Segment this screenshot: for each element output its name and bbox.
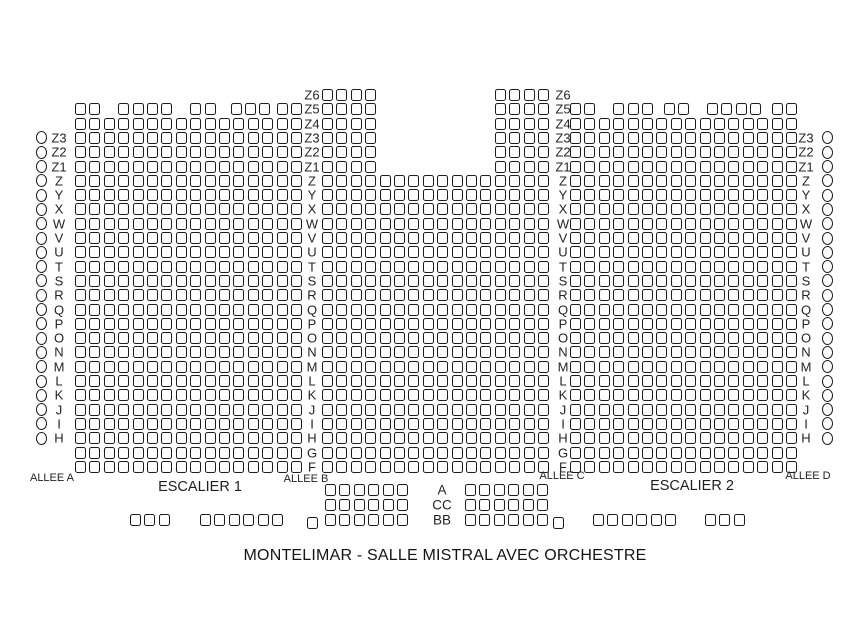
seat-F[interactable]	[642, 461, 653, 473]
seat-W[interactable]	[176, 218, 187, 230]
seat-Z[interactable]	[700, 175, 711, 187]
seat-K[interactable]	[423, 389, 434, 401]
seat-J[interactable]	[147, 404, 158, 416]
seat-F[interactable]	[495, 461, 506, 473]
seat-Y[interactable]	[509, 189, 520, 201]
seat-Y[interactable]	[161, 189, 172, 201]
seat-Z2[interactable]	[104, 146, 115, 158]
seat-Z2[interactable]	[599, 146, 610, 158]
seat-BB[interactable]	[665, 514, 676, 526]
seat-U[interactable]	[365, 246, 376, 258]
seat-Z[interactable]	[524, 175, 535, 187]
seat-L[interactable]	[351, 375, 362, 387]
seat-I[interactable]	[133, 418, 144, 430]
seat-M[interactable]	[291, 361, 302, 373]
seat-N[interactable]	[656, 346, 667, 358]
seat-Z1[interactable]	[524, 161, 535, 173]
seat-U[interactable]	[452, 246, 463, 258]
seat-P[interactable]	[394, 318, 405, 330]
seat-K[interactable]	[642, 389, 653, 401]
seat-X[interactable]	[219, 203, 230, 215]
seat-T[interactable]	[656, 261, 667, 273]
seat-R[interactable]	[322, 289, 333, 301]
seat-O[interactable]	[599, 332, 610, 344]
seat-U[interactable]	[772, 246, 783, 258]
seat-S[interactable]	[322, 275, 333, 287]
seat-Z5[interactable]	[538, 103, 549, 115]
seat-S[interactable]	[161, 275, 172, 287]
seat-Z4[interactable]	[642, 118, 653, 130]
seat-G[interactable]	[262, 447, 273, 459]
seat-X[interactable]	[613, 203, 624, 215]
seat-BB[interactable]	[553, 517, 564, 529]
seat-A[interactable]	[368, 484, 379, 496]
seat-Z4[interactable]	[584, 118, 595, 130]
seat-P[interactable]	[437, 318, 448, 330]
seat-P[interactable]	[538, 318, 549, 330]
seat-K[interactable]	[437, 389, 448, 401]
seat-L[interactable]	[437, 375, 448, 387]
seat-M[interactable]	[277, 361, 288, 373]
seat-BB[interactable]	[397, 514, 408, 526]
seat-K[interactable]	[219, 389, 230, 401]
seat-I[interactable]	[118, 418, 129, 430]
seat-F[interactable]	[599, 461, 610, 473]
seat-BB[interactable]	[130, 514, 141, 526]
seat-S[interactable]	[452, 275, 463, 287]
seat-P[interactable]	[642, 318, 653, 330]
seat-Z6[interactable]	[336, 89, 347, 101]
seat-S[interactable]	[584, 275, 595, 287]
seat-P[interactable]	[570, 318, 581, 330]
seat-F[interactable]	[613, 461, 624, 473]
seat-R[interactable]	[584, 289, 595, 301]
seat-T[interactable]	[277, 261, 288, 273]
seat-J[interactable]	[219, 404, 230, 416]
seat-T[interactable]	[757, 261, 768, 273]
seat-J[interactable]	[628, 404, 639, 416]
seat-J[interactable]	[772, 404, 783, 416]
seat-L[interactable]	[219, 375, 230, 387]
seat-U[interactable]	[176, 246, 187, 258]
seat-M[interactable]	[584, 361, 595, 373]
seat-Z5[interactable]	[231, 103, 242, 115]
seat-S[interactable]	[262, 275, 273, 287]
seat-P[interactable]	[628, 318, 639, 330]
seat-S[interactable]	[437, 275, 448, 287]
seat-BB[interactable]	[200, 514, 211, 526]
seat-BB[interactable]	[272, 514, 283, 526]
seat-X[interactable]	[147, 203, 158, 215]
seat-Z3[interactable]	[133, 132, 144, 144]
seat-U[interactable]	[291, 246, 302, 258]
seat-Z2[interactable]	[757, 146, 768, 158]
seat-T[interactable]	[394, 261, 405, 273]
seat-Z1[interactable]	[219, 161, 230, 173]
seat-Y[interactable]	[133, 189, 144, 201]
seat-X[interactable]	[277, 203, 288, 215]
seat-L[interactable]	[89, 375, 100, 387]
seat-V[interactable]	[423, 232, 434, 244]
seat-J[interactable]	[671, 404, 682, 416]
seat-N[interactable]	[394, 346, 405, 358]
row-end-circle-seat[interactable]	[822, 174, 833, 187]
seat-P[interactable]	[524, 318, 535, 330]
seat-N[interactable]	[772, 346, 783, 358]
row-end-circle-seat[interactable]	[822, 360, 833, 373]
seat-BB[interactable]	[537, 514, 548, 526]
seat-H[interactable]	[743, 432, 754, 444]
seat-T[interactable]	[233, 261, 244, 273]
seat-Y[interactable]	[728, 189, 739, 201]
seat-T[interactable]	[509, 261, 520, 273]
seat-G[interactable]	[757, 447, 768, 459]
seat-V[interactable]	[176, 232, 187, 244]
seat-I[interactable]	[599, 418, 610, 430]
seat-Z2[interactable]	[248, 146, 259, 158]
seat-Z2[interactable]	[570, 146, 581, 158]
seat-U[interactable]	[613, 246, 624, 258]
seat-Z5[interactable]	[336, 103, 347, 115]
seat-Q[interactable]	[205, 304, 216, 316]
seat-Z1[interactable]	[714, 161, 725, 173]
seat-Z1[interactable]	[570, 161, 581, 173]
seat-H[interactable]	[277, 432, 288, 444]
seat-Q[interactable]	[628, 304, 639, 316]
seat-T[interactable]	[714, 261, 725, 273]
seat-V[interactable]	[480, 232, 491, 244]
seat-F[interactable]	[380, 461, 391, 473]
seat-Z3[interactable]	[190, 132, 201, 144]
seat-L[interactable]	[700, 375, 711, 387]
row-end-circle-seat[interactable]	[36, 303, 47, 316]
seat-BB[interactable]	[383, 514, 394, 526]
seat-Q[interactable]	[351, 304, 362, 316]
seat-S[interactable]	[495, 275, 506, 287]
seat-G[interactable]	[147, 447, 158, 459]
seat-R[interactable]	[233, 289, 244, 301]
seat-X[interactable]	[351, 203, 362, 215]
seat-R[interactable]	[219, 289, 230, 301]
seat-Z1[interactable]	[628, 161, 639, 173]
seat-V[interactable]	[394, 232, 405, 244]
seat-K[interactable]	[104, 389, 115, 401]
seat-X[interactable]	[584, 203, 595, 215]
seat-W[interactable]	[233, 218, 244, 230]
seat-H[interactable]	[205, 432, 216, 444]
seat-W[interactable]	[351, 218, 362, 230]
seat-Y[interactable]	[277, 189, 288, 201]
seat-H[interactable]	[613, 432, 624, 444]
seat-O[interactable]	[538, 332, 549, 344]
seat-F[interactable]	[190, 461, 201, 473]
seat-S[interactable]	[423, 275, 434, 287]
seat-Z4[interactable]	[757, 118, 768, 130]
seat-K[interactable]	[118, 389, 129, 401]
seat-M[interactable]	[524, 361, 535, 373]
seat-R[interactable]	[118, 289, 129, 301]
seat-X[interactable]	[89, 203, 100, 215]
seat-Z4[interactable]	[161, 118, 172, 130]
seat-X[interactable]	[205, 203, 216, 215]
seat-H[interactable]	[336, 432, 347, 444]
seat-Z4[interactable]	[233, 118, 244, 130]
seat-V[interactable]	[161, 232, 172, 244]
seat-R[interactable]	[291, 289, 302, 301]
seat-Z5[interactable]	[642, 103, 653, 115]
seat-Z1[interactable]	[509, 161, 520, 173]
seat-V[interactable]	[772, 232, 783, 244]
seat-Z4[interactable]	[190, 118, 201, 130]
seat-Z5[interactable]	[365, 103, 376, 115]
seat-Z2[interactable]	[728, 146, 739, 158]
seat-Q[interactable]	[743, 304, 754, 316]
seat-Z[interactable]	[584, 175, 595, 187]
seat-X[interactable]	[104, 203, 115, 215]
seat-Y[interactable]	[757, 189, 768, 201]
seat-S[interactable]	[133, 275, 144, 287]
seat-M[interactable]	[671, 361, 682, 373]
seat-U[interactable]	[262, 246, 273, 258]
seat-Q[interactable]	[466, 304, 477, 316]
seat-Q[interactable]	[599, 304, 610, 316]
seat-T[interactable]	[423, 261, 434, 273]
seat-Z5[interactable]	[707, 103, 718, 115]
seat-Z2[interactable]	[613, 146, 624, 158]
seat-J[interactable]	[277, 404, 288, 416]
seat-S[interactable]	[757, 275, 768, 287]
seat-Z3[interactable]	[205, 132, 216, 144]
seat-X[interactable]	[685, 203, 696, 215]
seat-L[interactable]	[365, 375, 376, 387]
seat-Z4[interactable]	[219, 118, 230, 130]
seat-Q[interactable]	[728, 304, 739, 316]
seat-Y[interactable]	[538, 189, 549, 201]
seat-P[interactable]	[351, 318, 362, 330]
seat-CC[interactable]	[537, 499, 548, 511]
seat-Z5[interactable]	[772, 103, 783, 115]
seat-I[interactable]	[685, 418, 696, 430]
seat-I[interactable]	[584, 418, 595, 430]
seat-J[interactable]	[437, 404, 448, 416]
seat-Z2[interactable]	[176, 146, 187, 158]
seat-O[interactable]	[380, 332, 391, 344]
seat-Q[interactable]	[509, 304, 520, 316]
seat-M[interactable]	[75, 361, 86, 373]
seat-P[interactable]	[772, 318, 783, 330]
seat-G[interactable]	[380, 447, 391, 459]
seat-M[interactable]	[380, 361, 391, 373]
seat-I[interactable]	[161, 418, 172, 430]
seat-Y[interactable]	[599, 189, 610, 201]
seat-O[interactable]	[437, 332, 448, 344]
seat-P[interactable]	[714, 318, 725, 330]
seat-W[interactable]	[262, 218, 273, 230]
seat-L[interactable]	[118, 375, 129, 387]
seat-S[interactable]	[219, 275, 230, 287]
row-end-circle-seat[interactable]	[36, 146, 47, 159]
seat-Z3[interactable]	[233, 132, 244, 144]
seat-S[interactable]	[147, 275, 158, 287]
seat-W[interactable]	[147, 218, 158, 230]
seat-Z[interactable]	[161, 175, 172, 187]
seat-H[interactable]	[291, 432, 302, 444]
seat-G[interactable]	[351, 447, 362, 459]
seat-Z[interactable]	[394, 175, 405, 187]
row-end-circle-seat[interactable]	[822, 189, 833, 202]
seat-P[interactable]	[133, 318, 144, 330]
seat-Z4[interactable]	[75, 118, 86, 130]
seat-H[interactable]	[190, 432, 201, 444]
seat-I[interactable]	[176, 418, 187, 430]
seat-O[interactable]	[322, 332, 333, 344]
seat-Q[interactable]	[262, 304, 273, 316]
seat-Z1[interactable]	[671, 161, 682, 173]
seat-F[interactable]	[219, 461, 230, 473]
seat-V[interactable]	[380, 232, 391, 244]
seat-P[interactable]	[480, 318, 491, 330]
seat-Z6[interactable]	[509, 89, 520, 101]
seat-M[interactable]	[133, 361, 144, 373]
seat-Y[interactable]	[685, 189, 696, 201]
seat-X[interactable]	[480, 203, 491, 215]
seat-Z2[interactable]	[219, 146, 230, 158]
seat-G[interactable]	[772, 447, 783, 459]
seat-G[interactable]	[190, 447, 201, 459]
seat-Z2[interactable]	[509, 146, 520, 158]
seat-Y[interactable]	[700, 189, 711, 201]
seat-Z5[interactable]	[147, 103, 158, 115]
seat-CC[interactable]	[368, 499, 379, 511]
seat-K[interactable]	[524, 389, 535, 401]
seat-S[interactable]	[205, 275, 216, 287]
seat-Z2[interactable]	[89, 146, 100, 158]
seat-I[interactable]	[147, 418, 158, 430]
seat-T[interactable]	[205, 261, 216, 273]
seat-M[interactable]	[205, 361, 216, 373]
seat-Z1[interactable]	[351, 161, 362, 173]
seat-M[interactable]	[700, 361, 711, 373]
seat-O[interactable]	[190, 332, 201, 344]
seat-Z1[interactable]	[656, 161, 667, 173]
seat-Z[interactable]	[104, 175, 115, 187]
seat-W[interactable]	[219, 218, 230, 230]
seat-BB[interactable]	[651, 514, 662, 526]
seat-G[interactable]	[437, 447, 448, 459]
seat-V[interactable]	[495, 232, 506, 244]
seat-J[interactable]	[584, 404, 595, 416]
seat-Z4[interactable]	[714, 118, 725, 130]
seat-N[interactable]	[89, 346, 100, 358]
seat-S[interactable]	[743, 275, 754, 287]
seat-Z2[interactable]	[190, 146, 201, 158]
seat-Z[interactable]	[118, 175, 129, 187]
seat-Z2[interactable]	[291, 146, 302, 158]
seat-Z3[interactable]	[757, 132, 768, 144]
seat-O[interactable]	[147, 332, 158, 344]
seat-L[interactable]	[524, 375, 535, 387]
seat-A[interactable]	[494, 484, 505, 496]
seat-O[interactable]	[176, 332, 187, 344]
seat-Z2[interactable]	[75, 146, 86, 158]
seat-H[interactable]	[75, 432, 86, 444]
seat-Z3[interactable]	[495, 132, 506, 144]
seat-L[interactable]	[452, 375, 463, 387]
seat-Q[interactable]	[176, 304, 187, 316]
seat-Y[interactable]	[437, 189, 448, 201]
seat-O[interactable]	[233, 332, 244, 344]
seat-U[interactable]	[423, 246, 434, 258]
seat-L[interactable]	[786, 375, 797, 387]
row-end-circle-seat[interactable]	[822, 217, 833, 230]
seat-I[interactable]	[466, 418, 477, 430]
seat-BB[interactable]	[229, 514, 240, 526]
seat-L[interactable]	[161, 375, 172, 387]
seat-J[interactable]	[89, 404, 100, 416]
seat-Z4[interactable]	[262, 118, 273, 130]
seat-G[interactable]	[786, 447, 797, 459]
seat-Y[interactable]	[219, 189, 230, 201]
seat-P[interactable]	[685, 318, 696, 330]
seat-W[interactable]	[452, 218, 463, 230]
seat-S[interactable]	[570, 275, 581, 287]
seat-I[interactable]	[291, 418, 302, 430]
seat-P[interactable]	[277, 318, 288, 330]
row-end-circle-seat[interactable]	[36, 417, 47, 430]
seat-Z[interactable]	[351, 175, 362, 187]
seat-Z2[interactable]	[277, 146, 288, 158]
seat-L[interactable]	[75, 375, 86, 387]
seat-Z3[interactable]	[584, 132, 595, 144]
seat-L[interactable]	[480, 375, 491, 387]
seat-G[interactable]	[89, 447, 100, 459]
seat-Z1[interactable]	[685, 161, 696, 173]
seat-L[interactable]	[423, 375, 434, 387]
seat-X[interactable]	[570, 203, 581, 215]
seat-Y[interactable]	[466, 189, 477, 201]
seat-T[interactable]	[480, 261, 491, 273]
seat-Z[interactable]	[642, 175, 653, 187]
seat-Z1[interactable]	[133, 161, 144, 173]
seat-U[interactable]	[336, 246, 347, 258]
seat-V[interactable]	[685, 232, 696, 244]
seat-Z[interactable]	[480, 175, 491, 187]
seat-T[interactable]	[628, 261, 639, 273]
seat-W[interactable]	[380, 218, 391, 230]
row-end-circle-seat[interactable]	[822, 417, 833, 430]
seat-F[interactable]	[75, 461, 86, 473]
seat-T[interactable]	[408, 261, 419, 273]
seat-Z3[interactable]	[628, 132, 639, 144]
seat-L[interactable]	[336, 375, 347, 387]
seat-Z4[interactable]	[351, 118, 362, 130]
seat-R[interactable]	[642, 289, 653, 301]
seat-Z1[interactable]	[757, 161, 768, 173]
seat-Q[interactable]	[118, 304, 129, 316]
seat-P[interactable]	[104, 318, 115, 330]
seat-H[interactable]	[700, 432, 711, 444]
seat-J[interactable]	[642, 404, 653, 416]
row-end-circle-seat[interactable]	[36, 317, 47, 330]
seat-Z[interactable]	[423, 175, 434, 187]
seat-BB[interactable]	[307, 517, 318, 529]
seat-O[interactable]	[161, 332, 172, 344]
seat-T[interactable]	[89, 261, 100, 273]
seat-V[interactable]	[743, 232, 754, 244]
seat-Z2[interactable]	[147, 146, 158, 158]
seat-Q[interactable]	[700, 304, 711, 316]
seat-W[interactable]	[642, 218, 653, 230]
